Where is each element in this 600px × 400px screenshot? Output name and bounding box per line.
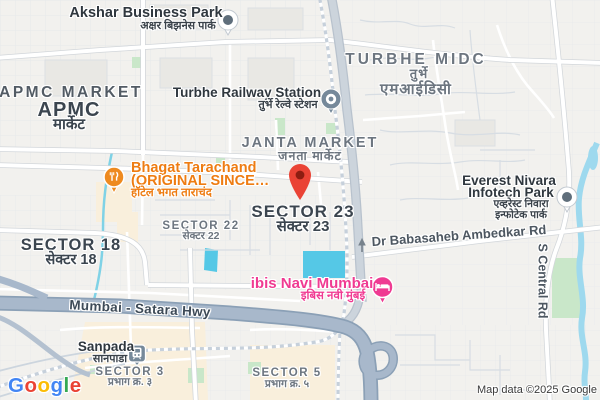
area-sublabel-sector-22: सेक्टर 22 bbox=[182, 231, 219, 242]
map-attribution: Map data ©2025 Google bbox=[477, 384, 597, 396]
locality-sublabel-apmc: मार्केट bbox=[53, 117, 85, 133]
place-sublabel-everest-nivara-2[interactable]: इन्फोटेक पार्क bbox=[495, 210, 547, 221]
road-label-s-central-rd: S Central Rd bbox=[535, 243, 548, 318]
google-logo-letter: e bbox=[70, 374, 82, 397]
google-logo-letter: G bbox=[8, 374, 24, 397]
place-sublabel-sanpada[interactable]: सानपाडा bbox=[93, 354, 127, 366]
place-sublabel-turbhe-railway-station[interactable]: तुर्भे रेल्वे स्टेशन bbox=[258, 100, 317, 112]
place-sublabel-akshar-business-park[interactable]: अक्षर बिझनेस पार्क bbox=[140, 21, 215, 33]
area-sublabel-sector-3: प्रभाग क्र. ३ bbox=[108, 377, 152, 388]
turbhe-railway-station-marker[interactable] bbox=[318, 86, 344, 116]
area-sublabel-janta-market: जनता मार्केट bbox=[278, 150, 342, 163]
transit-station-pin-icon bbox=[326, 94, 336, 104]
area-sublabel-turbhe-midc-1: तुर्भे bbox=[410, 67, 429, 81]
destination-pin[interactable] bbox=[285, 160, 315, 202]
place-sublabel-ibis-navi-mumbai[interactable]: इबिस नवी मुंबई bbox=[301, 290, 365, 302]
everest-nivara-marker[interactable] bbox=[554, 184, 580, 214]
google-logo-letter: o bbox=[37, 374, 50, 397]
white-dot-circle-icon bbox=[562, 192, 572, 202]
red-map-pin-icon bbox=[289, 164, 311, 200]
google-logo[interactable]: Google bbox=[8, 374, 82, 398]
google-logo-letter: g bbox=[51, 374, 64, 397]
area-sublabel-sector-23: सेक्टर 23 bbox=[277, 219, 330, 235]
place-sublabel-bhagat-tarachand[interactable]: हॉटेल भगत ताराचंद bbox=[131, 187, 212, 199]
bhagat-tarachand-marker[interactable] bbox=[101, 164, 127, 196]
area-sublabel-turbhe-midc-2: एमआईडिसी bbox=[380, 82, 452, 98]
area-sublabel-sector-5: प्रभाग क्र. ५ bbox=[265, 379, 309, 390]
google-logo-letter: o bbox=[24, 374, 37, 397]
white-dot-circle-icon bbox=[223, 15, 233, 25]
area-sublabel-sector-18: सेक्टर 18 bbox=[45, 253, 96, 268]
map-canvas[interactable]: Akshar Business Park अक्षर बिझनेस पार्क … bbox=[0, 0, 600, 400]
